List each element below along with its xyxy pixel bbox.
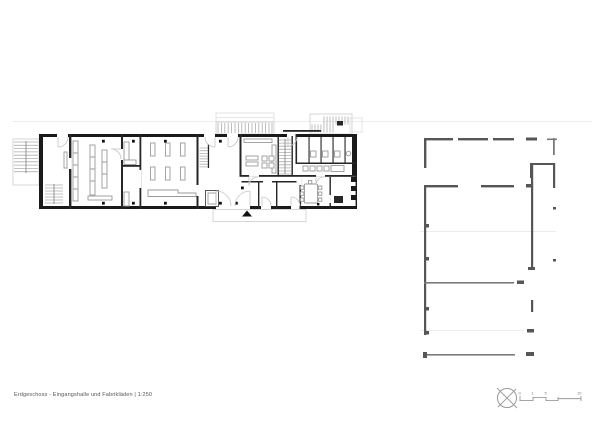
display-tables	[148, 143, 196, 197]
exterior-staircase-left	[13, 139, 39, 185]
floor-plan-drawing: 0 1 5 10	[0, 0, 600, 424]
entrance-closet	[206, 191, 219, 207]
meeting-room-furniture	[301, 181, 344, 206]
scale-label-0: 0	[519, 391, 522, 396]
drawing-caption: Erdgeschoss - Eingangshalle und Fabriklä…	[14, 392, 152, 398]
exterior-staircase-top	[216, 113, 274, 134]
entrance-platform	[213, 210, 306, 222]
secondary-staircase	[200, 148, 208, 167]
main-staircase	[279, 139, 291, 174]
scale-label-1: 1	[532, 391, 535, 396]
scale-label-5: 5	[545, 391, 548, 396]
north-symbol-icon	[497, 388, 517, 408]
wc-kitchen-fixtures	[303, 151, 351, 172]
adjacent-structure-plan	[423, 138, 557, 359]
room-c-counters	[124, 142, 136, 206]
lounge-furniture	[244, 139, 276, 173]
room-a-staircase	[45, 184, 63, 204]
scale-bar: 0 1 5 10	[519, 391, 583, 402]
floor-plan-sheet: 0 1 5 10 Erdgeschoss - Eingangshalle und…	[0, 0, 600, 424]
entrance-direction-marker	[242, 211, 252, 217]
scale-label-10: 10	[577, 391, 582, 396]
site-lines	[12, 122, 592, 331]
